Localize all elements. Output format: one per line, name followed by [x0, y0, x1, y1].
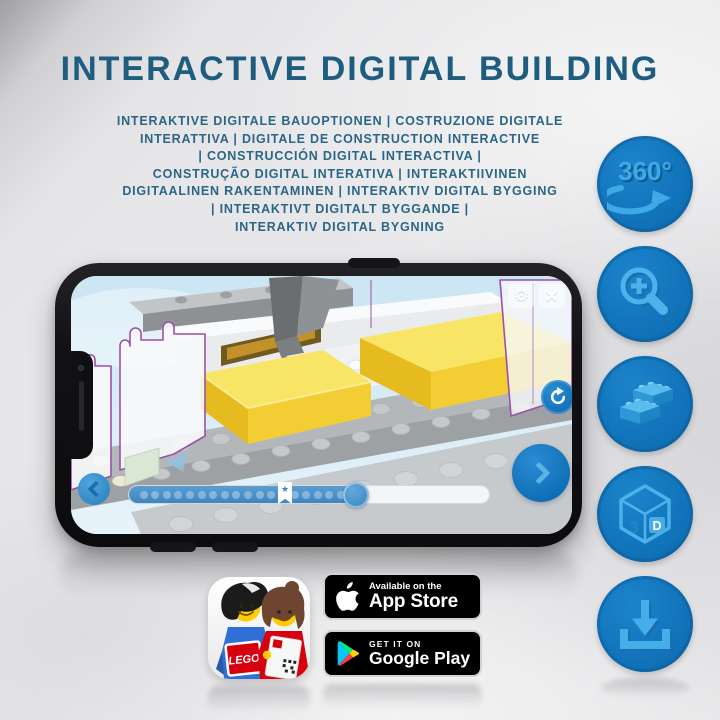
- zoom-in-icon: [611, 260, 679, 328]
- star-icon: ★: [281, 484, 289, 494]
- subtitle-line: INTERAKTIVE DIGITALE BAUOPTIONEN | COSTR…: [0, 113, 680, 131]
- next-step-button[interactable]: [512, 444, 570, 502]
- progress-dot: [267, 491, 275, 499]
- 360-rotation-icon: 360° 360°: [607, 148, 683, 220]
- subtitle-line: | INTERAKTIVT DIGITALT BYGGANDE |: [0, 201, 680, 219]
- progress-handle[interactable]: [343, 482, 369, 508]
- subtitle-line: DIGITAALINEN RAKENTAMINEN | INTERAKTIV D…: [0, 183, 680, 201]
- previous-step-button[interactable]: [78, 473, 110, 505]
- badge-reflection: [323, 684, 482, 708]
- progress-dot: [209, 491, 217, 499]
- progress-dot: [256, 491, 264, 499]
- rotate-view-button[interactable]: [541, 380, 572, 414]
- apple-logo-icon: [336, 582, 360, 611]
- close-button[interactable]: ×: [538, 283, 565, 308]
- progress-dot: [174, 491, 182, 499]
- lego-minifigures-art: LEGO: [208, 577, 310, 679]
- progress-dot: [244, 491, 252, 499]
- progress-fill: [129, 486, 356, 503]
- feature-reflection: [601, 678, 689, 698]
- gear-icon: ⚙: [514, 286, 529, 306]
- google-play-name: Google Play: [369, 649, 470, 667]
- progress-dot: [221, 491, 229, 499]
- progress-dot: [198, 491, 206, 499]
- svg-text:360°: 360°: [618, 156, 672, 186]
- progress-dot: [163, 491, 171, 499]
- phone-power-button: [348, 258, 400, 268]
- phone-reflection: [60, 551, 577, 599]
- feature-zoom-badge: [597, 246, 693, 342]
- subtitle-line: CONSTRUÇÃO DIGITAL INTERATIVA | INTERAKT…: [0, 166, 680, 184]
- progress-step-dots: [129, 486, 356, 503]
- google-play-text: GET IT ON Google Play: [369, 640, 470, 667]
- phone-notch: [71, 351, 93, 459]
- settings-button[interactable]: ⚙: [508, 283, 535, 308]
- chevron-left-icon: [88, 481, 105, 498]
- chevron-right-icon: [527, 462, 550, 485]
- subtitle-block: INTERAKTIVE DIGITALE BAUOPTIONEN | COSTR…: [0, 113, 680, 236]
- lego-app-icon[interactable]: LEGO: [208, 577, 310, 679]
- app-store-badge[interactable]: Available on the App Store: [323, 573, 482, 620]
- feature-brick-options-badge: [597, 356, 693, 452]
- google-play-badge[interactable]: GET IT ON Google Play: [323, 630, 482, 677]
- lego-brick-icon: [611, 370, 679, 438]
- app-store-name: App Store: [369, 592, 458, 612]
- subtitle-line: | CONSTRUCCIÓN DIGITAL INTERACTIVA |: [0, 148, 680, 166]
- camera-dot: [78, 365, 84, 371]
- subtitle-line: INTERATTIVA | DIGITALE DE CONSTRUCTION I…: [0, 131, 680, 149]
- app-icon-reflection: [208, 686, 310, 712]
- phone-screen: ⚙ × ★: [71, 276, 572, 534]
- progress-dot: [314, 491, 322, 499]
- 3d-cube-icon: 3 D: [611, 480, 679, 548]
- feature-download-badge: [597, 576, 693, 672]
- feature-360-rotation-badge: 360° 360°: [597, 136, 693, 232]
- progress-dot: [302, 491, 310, 499]
- feature-3d-view-badge: 3 D: [597, 466, 693, 562]
- download-icon: [611, 590, 679, 658]
- subtitle-line: INTERAKTIV DIGITAL BYGNING: [0, 219, 680, 237]
- rotate-icon: [548, 387, 568, 407]
- svg-text:3: 3: [629, 518, 638, 537]
- progress-dot: [151, 491, 159, 499]
- svg-text:D: D: [652, 519, 661, 533]
- smartphone: ⚙ × ★: [55, 263, 582, 547]
- progress-dot: [325, 491, 333, 499]
- build-progress-bar[interactable]: ★: [128, 485, 490, 504]
- progress-dot: [232, 491, 240, 499]
- speaker-slit: [79, 381, 84, 431]
- google-play-logo-icon: [336, 640, 360, 667]
- page-title: INTERACTIVE DIGITAL BUILDING: [0, 50, 720, 89]
- app-store-text: Available on the App Store: [369, 582, 458, 612]
- progress-dot: [140, 491, 148, 499]
- promo-page: INTERACTIVE DIGITAL BUILDING INTERAKTIVE…: [0, 0, 720, 720]
- progress-dot: [186, 491, 194, 499]
